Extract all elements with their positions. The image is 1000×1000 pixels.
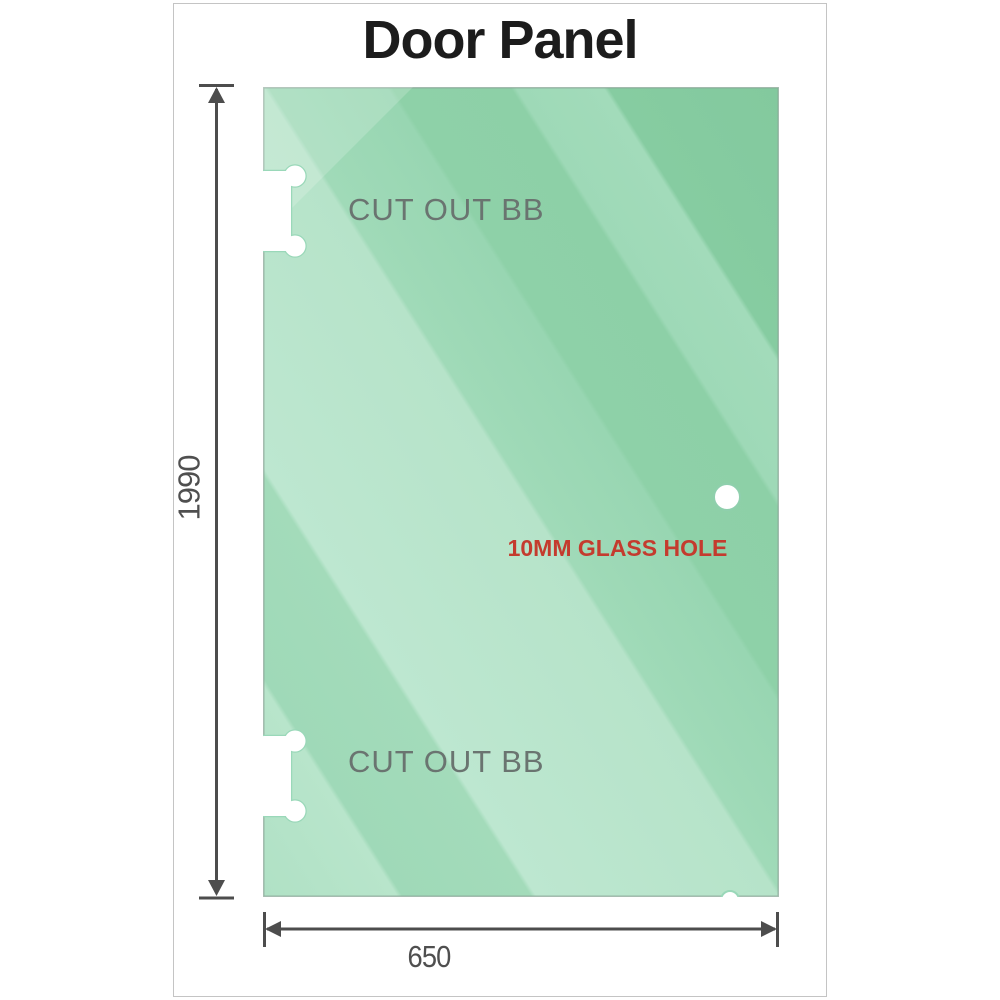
page-title: Door Panel [173, 12, 827, 69]
cutout-bb-top-label: CUT OUT BB [348, 194, 545, 225]
height-dimension-value: 1990 [174, 456, 205, 521]
door-panel-diagram: Door Panel [0, 0, 1000, 1000]
glass-hole [714, 484, 740, 510]
glass-hole-label: 10MM GLASS HOLE [505, 537, 730, 560]
width-dimension-value: 650 [402, 941, 457, 972]
cutout-bb-bottom-label: CUT OUT BB [348, 746, 545, 777]
